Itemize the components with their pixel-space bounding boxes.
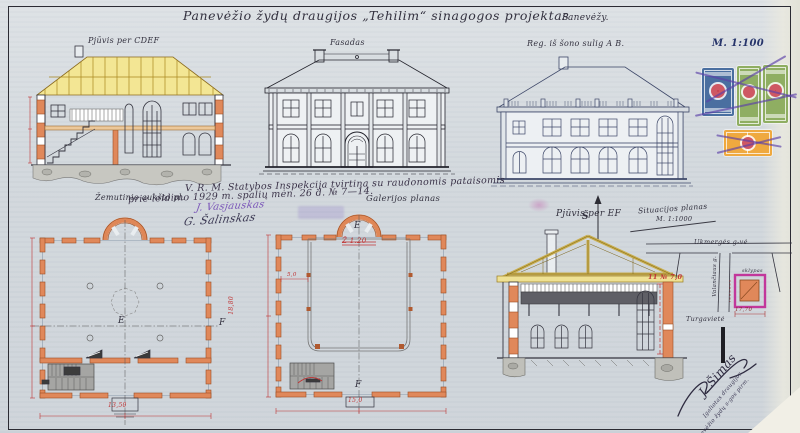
label-site-plan: Situacijos planas <box>638 202 708 216</box>
label-gallery-plan: Galerijos planas <box>366 194 440 204</box>
site-plot-label: sklypas <box>742 268 763 274</box>
sheet-place: Panevėžy. <box>562 13 609 23</box>
dim-inner-gallery: 5,0 <box>287 272 297 278</box>
red-correction-gallery: Ž 1.20 <box>342 237 366 245</box>
site-street-left: Valančiaus g. <box>712 256 718 297</box>
sheet-title: Panevėžio žydų draugijos „Tehilim“ sinag… <box>183 8 569 23</box>
facade-drawing <box>253 50 461 180</box>
site-bottom-label: Turgavietė <box>686 315 725 323</box>
label-site-scale: M. 1:1000 <box>656 215 692 223</box>
section-mark-f-gallery: F <box>355 380 362 390</box>
section-mark-e-gallery: E <box>354 221 361 231</box>
label-section-cdef: Pjūvis per CDEF <box>88 36 159 45</box>
section-mark-e-ground: E <box>118 316 125 326</box>
section-cdef-drawing <box>25 45 237 193</box>
dim-gallery-width: 15,0 <box>348 397 363 404</box>
drawing-sheet: Panevėžio žydų draugijos „Tehilim“ sinag… <box>0 0 800 433</box>
ground-floor-plan <box>28 220 223 430</box>
site-street-top: Ukmergės g-vė <box>694 238 748 246</box>
north-label: Š <box>582 212 589 222</box>
side-view-drawing <box>487 55 697 190</box>
dim-gallery-height: 18,80 <box>228 296 235 315</box>
site-plot-width: 17,70 <box>735 307 752 313</box>
ink-smudge <box>528 198 550 212</box>
section-mark-f-ground: F <box>219 318 226 328</box>
label-side-view: Reg. iš šono sulig A B. <box>527 39 624 48</box>
dim-ground-width: 13,50 <box>108 402 127 409</box>
label-facade: Fasadas <box>330 38 365 47</box>
label-ground-plan: Žemutinio aukšto pl. <box>95 193 185 202</box>
scale-label: M. 1:100 <box>712 38 764 49</box>
